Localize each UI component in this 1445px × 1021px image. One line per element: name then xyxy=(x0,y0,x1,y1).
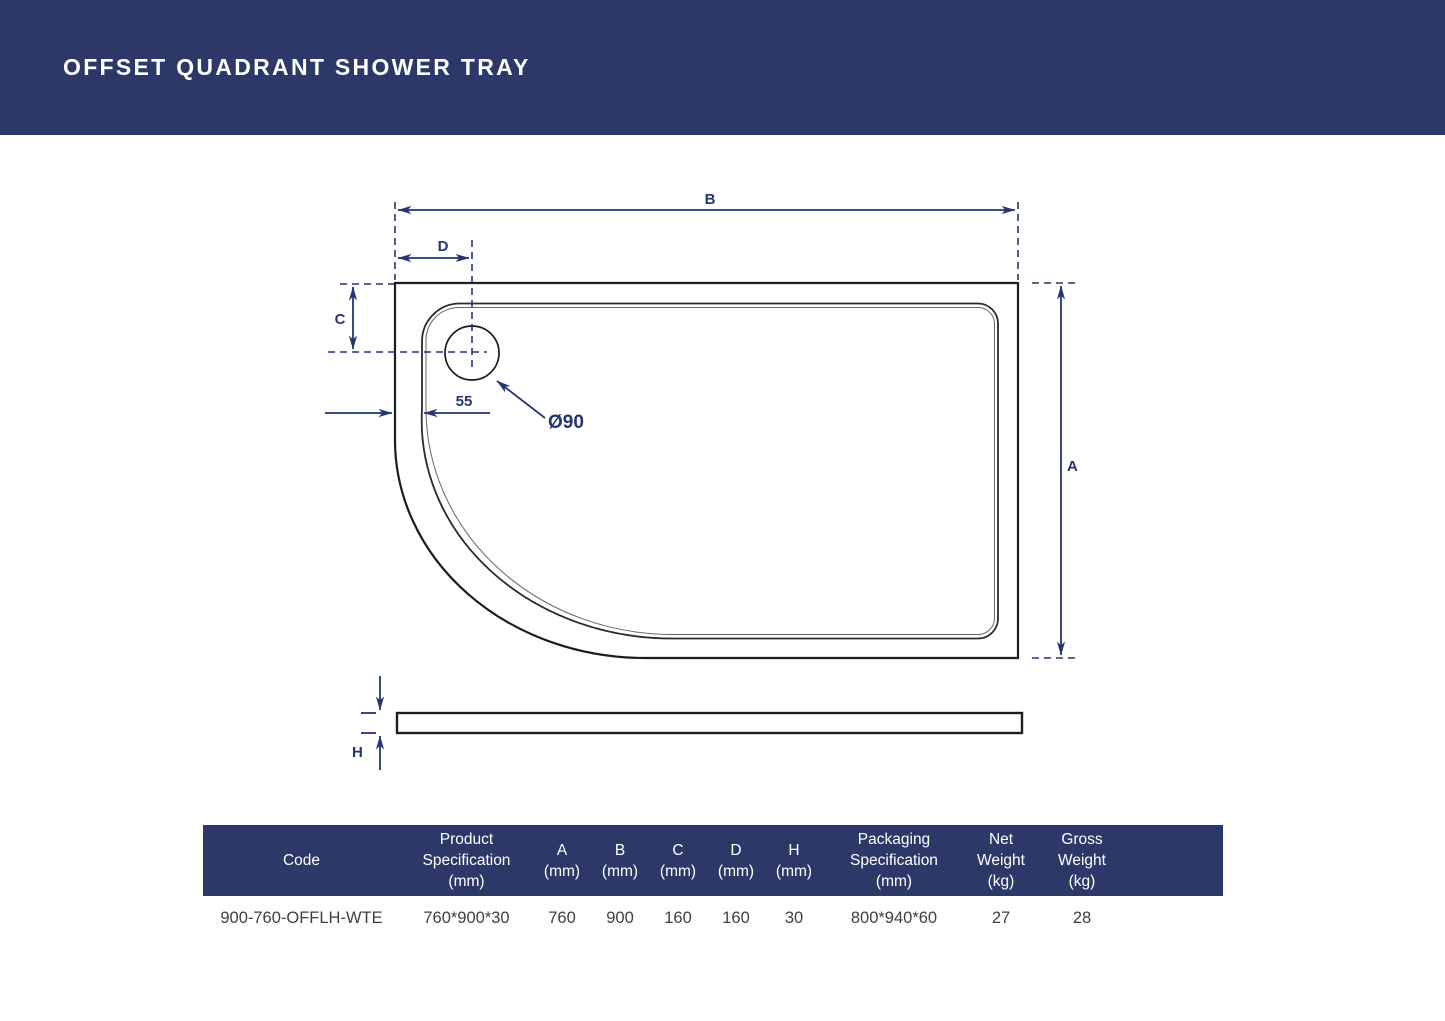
cell-d: 160 xyxy=(707,896,765,940)
dim-d-label: D xyxy=(438,238,449,255)
tray-outline xyxy=(395,283,1018,658)
cell-c: 160 xyxy=(649,896,707,940)
cell-product-spec: 760*900*30 xyxy=(400,896,533,940)
col-header-a: A (mm) xyxy=(533,825,591,896)
spec-table-header-row: Code Product Specification (mm) A (mm) B… xyxy=(203,825,1223,896)
cell-spacer xyxy=(1127,896,1223,940)
cell-b: 900 xyxy=(591,896,649,940)
col-header-product-spec: Product Specification (mm) xyxy=(400,825,533,896)
drain-diameter-label: Ø90 xyxy=(548,412,584,433)
cell-a: 760 xyxy=(533,896,591,940)
spec-table-data-row: 900-760-OFFLH-WTE 760*900*30 760 900 160… xyxy=(203,896,1223,940)
spec-sheet-page: OFFSET QUADRANT SHOWER TRAY xyxy=(0,0,1445,1021)
side-view-outline xyxy=(397,713,1022,733)
tray-rim-outer-line xyxy=(422,304,998,639)
col-header-d: D (mm) xyxy=(707,825,765,896)
col-header-net-weight: Net Weight (kg) xyxy=(965,825,1037,896)
cell-packaging-spec: 800*940*60 xyxy=(823,896,965,940)
tray-rim-inner-line xyxy=(426,307,995,634)
dim-h-label: H xyxy=(352,744,363,761)
drain-leader-line xyxy=(497,381,545,418)
col-header-c: C (mm) xyxy=(649,825,707,896)
col-header-packaging-spec: Packaging Specification (mm) xyxy=(823,825,965,896)
cell-code: 900-760-OFFLH-WTE xyxy=(203,896,400,940)
col-header-h: H (mm) xyxy=(765,825,823,896)
dim-a-label: A xyxy=(1067,458,1078,475)
cell-h: 30 xyxy=(765,896,823,940)
col-header-code: Code xyxy=(203,825,400,896)
col-header-spacer xyxy=(1127,825,1223,896)
col-header-gross-weight: Gross Weight (kg) xyxy=(1037,825,1127,896)
cell-net-weight: 27 xyxy=(965,896,1037,940)
dim-55-label: 55 xyxy=(456,393,473,410)
spec-table: Code Product Specification (mm) A (mm) B… xyxy=(203,825,1223,940)
col-header-b: B (mm) xyxy=(591,825,649,896)
dim-c-label: C xyxy=(335,311,346,328)
cell-gross-weight: 28 xyxy=(1037,896,1127,940)
dim-b-label: B xyxy=(705,191,716,208)
